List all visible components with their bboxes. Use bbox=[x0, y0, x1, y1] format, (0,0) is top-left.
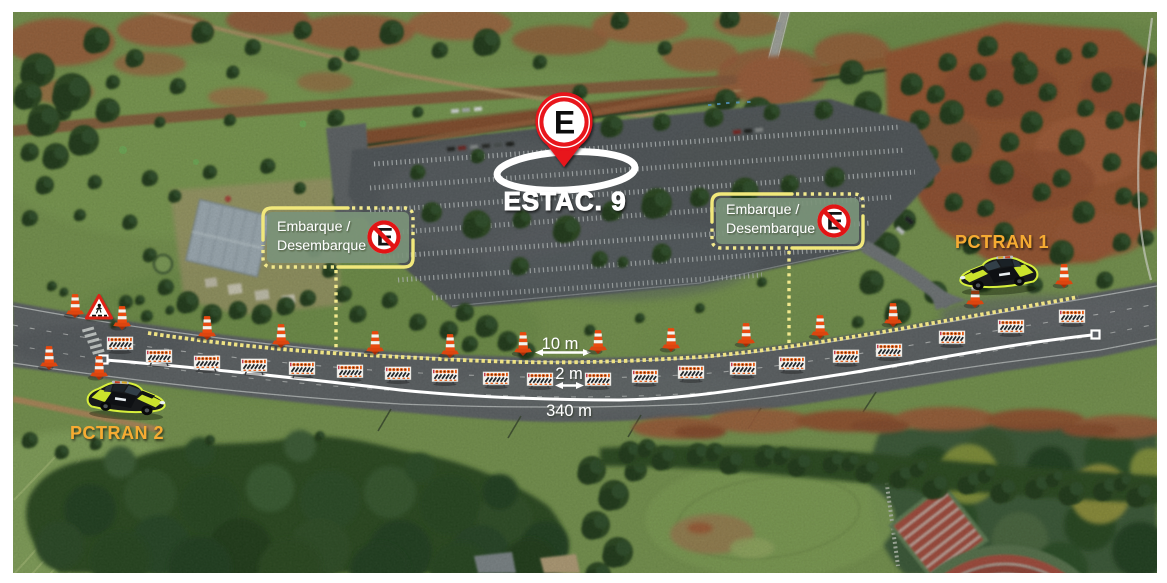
svg-text:10 m: 10 m bbox=[542, 335, 579, 353]
svg-text:ESTAC. 9: ESTAC. 9 bbox=[503, 186, 626, 216]
svg-text:PCTRAN 1: PCTRAN 1 bbox=[955, 232, 1049, 252]
svg-text:Embarque /: Embarque / bbox=[726, 202, 799, 218]
svg-text:Embarque /: Embarque / bbox=[277, 219, 350, 235]
svg-text:Desembarque: Desembarque bbox=[277, 238, 366, 254]
svg-text:PCTRAN 2: PCTRAN 2 bbox=[70, 423, 164, 443]
svg-text:Desembarque: Desembarque bbox=[726, 221, 815, 237]
svg-text:2 m: 2 m bbox=[555, 365, 583, 383]
svg-text:340 m: 340 m bbox=[546, 402, 592, 420]
svg-text:E: E bbox=[554, 105, 575, 141]
